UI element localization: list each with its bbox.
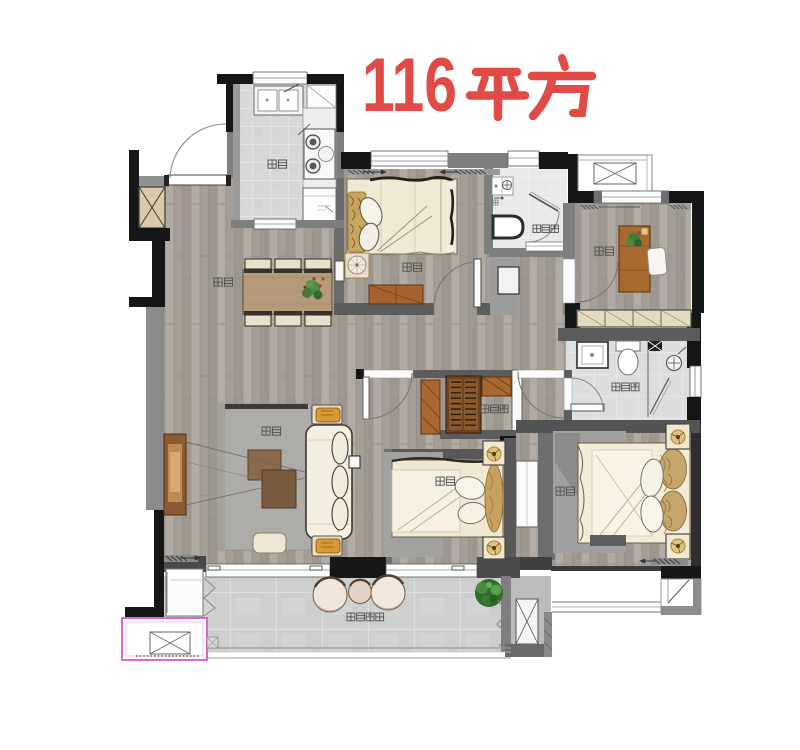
svg-text:116: 116 bbox=[362, 43, 457, 128]
